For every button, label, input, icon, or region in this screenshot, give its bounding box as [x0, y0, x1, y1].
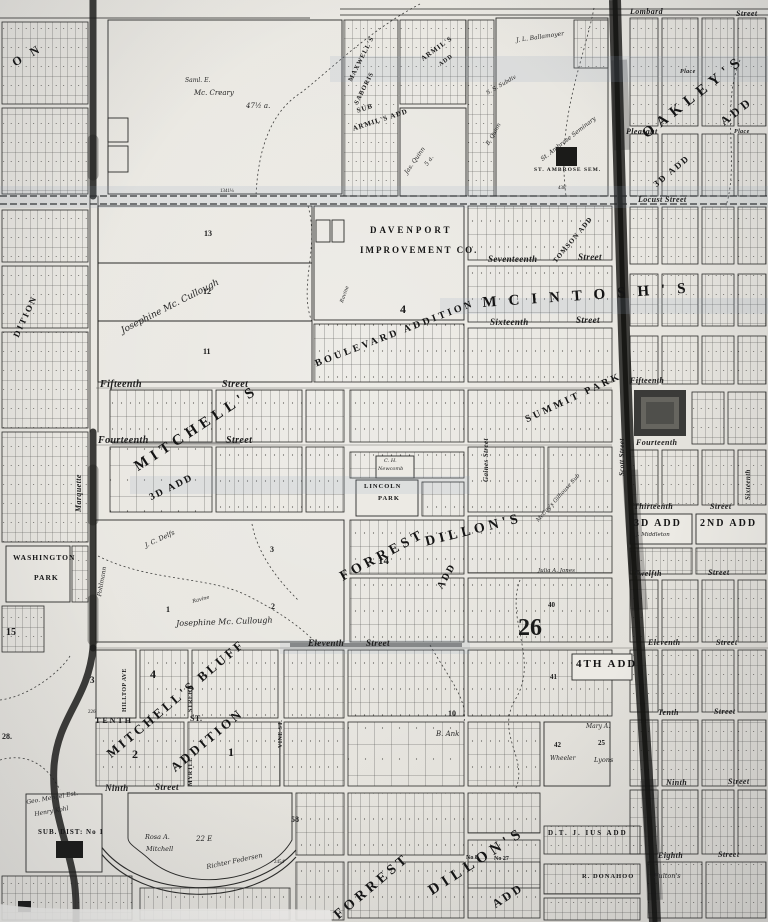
- parcel-3: 3: [90, 676, 95, 685]
- street-tenth-e-st: Street: [714, 707, 736, 716]
- park-washington: WASHINGTON: [13, 554, 75, 562]
- street-seventeenth-st: Street: [578, 252, 602, 262]
- block-2-big: 2: [132, 748, 138, 760]
- park-lincoln: LINCOLN: [364, 484, 401, 491]
- parcel-1: 1: [166, 606, 170, 614]
- landmark-st-ambrose: ST. AMBROSE SEM.: [534, 168, 601, 174]
- addition-fourth-add: 4TH ADD: [576, 659, 637, 670]
- block-10: 10: [448, 710, 456, 718]
- street-fifteenth-e: Fifteenth: [630, 376, 664, 385]
- owner-mccreary-2: Mc. Creary: [194, 90, 234, 97]
- sub-district-school-building: [56, 841, 83, 858]
- street-tenth-w: TENTH: [95, 716, 133, 725]
- addition-second-add-box: 2ND ADD: [700, 519, 757, 529]
- parcel-14: 14: [378, 556, 389, 567]
- owner-lyons: Lyons: [594, 757, 613, 764]
- street-marquette: Marquette: [74, 474, 83, 512]
- street-thirteenth-e-st: Street: [710, 502, 732, 511]
- addition-fultons: Fulton's: [654, 873, 681, 880]
- block-25: 25: [598, 740, 605, 747]
- street-fourteenth-w: Fourteenth: [98, 435, 149, 446]
- owner-rosa-2: Mitchell: [146, 846, 173, 853]
- street-fifteenth-w: Fifteenth: [100, 379, 142, 390]
- block-4c: 4: [400, 303, 406, 315]
- owner-b-ank: B. Ank: [436, 731, 459, 738]
- street-tenth-e: Tenth: [658, 708, 679, 717]
- street-thirteenth-e: Thirteenth: [634, 502, 673, 511]
- owner-wheeler: Wheeler: [550, 756, 575, 762]
- parcel-2: 2: [271, 603, 275, 611]
- street-fourteenth-e: Fourteenth: [636, 438, 677, 447]
- owner-newcomb-1: C. H.: [384, 459, 397, 464]
- reservoir-block: [634, 390, 686, 436]
- meas-1341: 1341¼: [220, 189, 234, 194]
- street-ninth-w: Ninth: [105, 783, 129, 793]
- block-42: 42: [554, 742, 561, 749]
- parcel-12: 12: [203, 288, 211, 296]
- street-sixteenth-st: Street: [576, 315, 600, 325]
- street-lombard: Lombard: [630, 7, 663, 16]
- street-ninth-e-st: Street: [728, 777, 750, 786]
- owner-22e: 22 E: [196, 836, 212, 843]
- owner-julia: Julia A. Jones: [538, 569, 575, 575]
- block-58: 58: [291, 816, 299, 824]
- street-twelfth-e-st: Street: [708, 568, 730, 577]
- landmark-sub-dist: SUB. DIST: No 1: [38, 829, 104, 836]
- parcel-11: 11: [203, 348, 211, 356]
- street-sixteenth-v: Sixteenth: [744, 469, 752, 500]
- street-eighth-e: Eighth: [658, 851, 683, 860]
- street-hilltop: HILLTOP AVE: [122, 668, 128, 712]
- street-eleventh-w-st: Street: [366, 638, 390, 648]
- street-sixteenth: Sixteenth: [490, 317, 529, 327]
- street-tenth-w-st: ST.: [190, 714, 202, 723]
- meas-226: 226': [88, 710, 96, 715]
- street-eighth-e-st: Street: [718, 850, 740, 859]
- street-twelfth-e: Twelfth: [634, 569, 662, 578]
- addition-donahoo: R. DONAHOO: [582, 874, 634, 881]
- street-eleventh-e-st: Street: [716, 638, 738, 647]
- block-41: 41: [550, 674, 557, 681]
- street-gaines: Gaines Street: [482, 438, 490, 482]
- block-4-big: 4: [150, 668, 156, 680]
- meas-2454: 2454': [274, 860, 285, 865]
- owner-mccreary-1: Saml. E.: [185, 78, 210, 84]
- street-lombard-st: Street: [736, 9, 758, 18]
- street-place-2: Place: [734, 129, 750, 135]
- block-40: 40: [548, 602, 555, 609]
- block-1-big: 1: [228, 746, 234, 758]
- parcel-3b: 3: [270, 546, 274, 554]
- owner-newcomb-2: Newcomb: [378, 467, 403, 472]
- street-place-top: Place: [680, 69, 696, 75]
- owner-mccreary-3: 47½ a.: [246, 103, 270, 110]
- addition-middleton: J. Middleton: [636, 533, 670, 539]
- street-eleventh-e: Eleventh: [648, 638, 681, 647]
- meas-438: 438': [558, 186, 566, 191]
- park-lincoln-park: PARK: [378, 496, 400, 503]
- street-locust: Locust Street: [638, 195, 687, 204]
- block-26: 26: [518, 616, 542, 640]
- plat-map-photo: Lombard Street Pleasant Place Place Locu…: [0, 0, 768, 922]
- company-improvement: IMPROVEMENT CO.: [360, 246, 478, 255]
- addition-third-add-box: 3D ADD: [634, 519, 682, 529]
- street-ninth-e: Ninth: [666, 778, 687, 787]
- street-scott: Scott Street: [618, 438, 626, 476]
- parcel-28: 28.: [2, 733, 12, 741]
- addition-no27: No 27: [494, 856, 509, 862]
- owner-rosa-1: Rosa A.: [145, 834, 170, 841]
- parcel-13: 13: [204, 230, 212, 238]
- addition-dtji: D.T. J. IUS ADD: [548, 830, 628, 837]
- park-washington-park: PARK: [34, 574, 59, 582]
- addition-no8: No 8: [466, 855, 478, 861]
- street-seventeenth: Seventeenth: [488, 254, 537, 264]
- street-fourteenth-w-st: Street: [226, 435, 252, 446]
- company-davenport: DAVENPORT: [370, 226, 453, 235]
- street-ninth-w-st: Street: [155, 782, 179, 792]
- street-eleventh-w: Eleventh: [308, 638, 344, 648]
- parcel-15: 15: [6, 628, 16, 638]
- street-vine: VINE ST.: [278, 720, 284, 748]
- owner-mary-a: Mary A.: [586, 724, 610, 730]
